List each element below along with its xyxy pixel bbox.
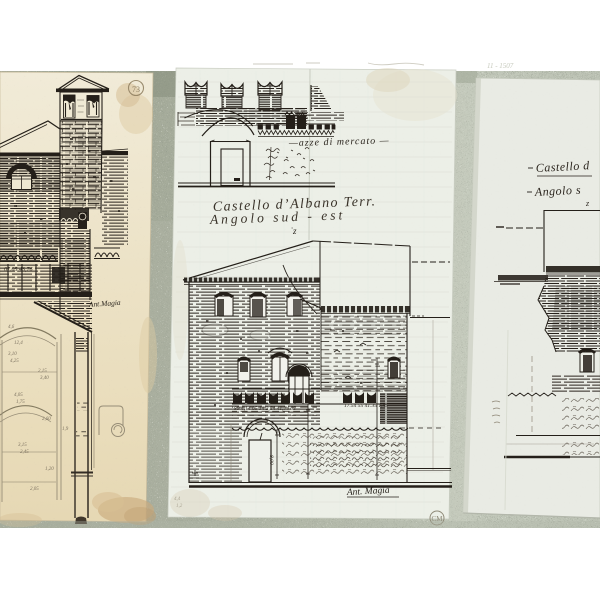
svg-text:Castello d: Castello d [535, 158, 590, 175]
svg-text:73: 73 [132, 85, 140, 94]
svg-text:2,45: 2,45 [20, 450, 29, 455]
svg-text:2,05: 2,05 [30, 487, 39, 492]
svg-text:2,15: 2,15 [38, 369, 47, 374]
svg-text:4,4: 4,4 [174, 497, 181, 502]
svg-text:3,15: 3,15 [18, 443, 27, 448]
svg-text:1,75: 1,75 [16, 400, 25, 405]
svg-text:1,9: 1,9 [62, 427, 69, 432]
svg-text:ʾᴢ: ʾᴢ [290, 226, 297, 236]
svg-text:3,10: 3,10 [8, 352, 17, 357]
svg-text:1,2: 1,2 [176, 504, 183, 509]
svg-text:11 - 1507: 11 - 1507 [487, 62, 514, 70]
svg-text:12,4: 12,4 [14, 341, 23, 346]
svg-text:Angolo s: Angolo s [533, 183, 581, 199]
svg-text:4,25: 4,25 [10, 359, 19, 364]
svg-text:1,20: 1,20 [45, 467, 54, 472]
svg-text:2,60: 2,60 [42, 417, 51, 422]
svg-text:3,40: 3,40 [40, 376, 49, 381]
svg-text:8,00: 8,00 [268, 455, 274, 465]
svg-text:4,05: 4,05 [14, 393, 23, 398]
svg-text:4,6: 4,6 [8, 325, 15, 330]
